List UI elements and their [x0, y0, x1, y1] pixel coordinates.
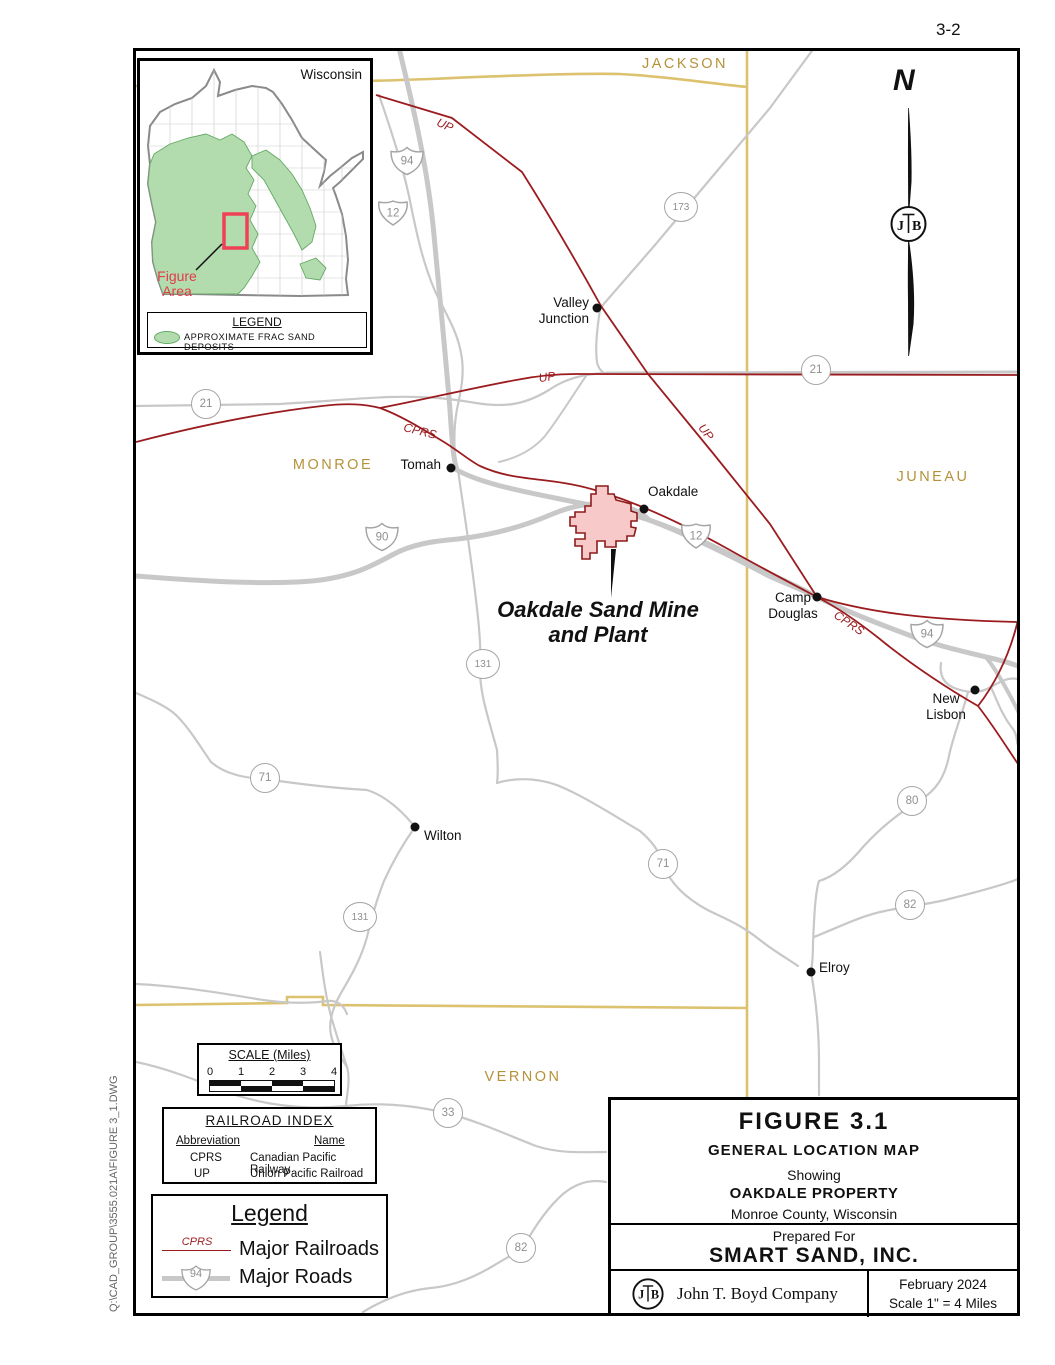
- city-label-line: Camp: [743, 590, 843, 606]
- county-label-juneau: JUNEAU: [896, 469, 969, 485]
- county-label-vernon: VERNON: [484, 1069, 561, 1085]
- route-number: 131: [343, 902, 377, 932]
- scale-ticks: 0 1 2 3 4: [199, 1066, 340, 1078]
- prepared-for: Prepared For: [611, 1228, 1017, 1244]
- legend-railroad-line-icon: [162, 1250, 231, 1251]
- inset-map: Wisconsin Figure Area LEGEND APPROXIMATE…: [137, 58, 373, 355]
- railroad-index-box: RAILROAD INDEX Abbreviation Name CPRS Ca…: [162, 1107, 377, 1184]
- company-name: John T. Boyd Company: [677, 1284, 838, 1304]
- railroad-label-cprs: CPRS: [402, 420, 438, 442]
- figure-date: February 2024: [899, 1275, 987, 1294]
- legend-cprs-tag: CPRS: [173, 1236, 221, 1248]
- route-number: 33: [433, 1098, 463, 1128]
- route-shield-71: 71: [250, 763, 280, 793]
- route-number: 21: [801, 355, 831, 385]
- north-label: N: [893, 64, 915, 98]
- route-shield-33: 33: [433, 1098, 463, 1128]
- city-label-line: Wilton: [424, 828, 524, 844]
- route-number: 82: [506, 1233, 536, 1263]
- property-name: OAKDALE PROPERTY: [611, 1185, 1017, 1202]
- route-shield-82: 82: [895, 890, 925, 920]
- route-shield-21: 21: [191, 389, 221, 419]
- scale-title: SCALE (Miles): [229, 1048, 311, 1062]
- jtb-logo-icon: J B: [631, 1277, 665, 1311]
- route-shield-21: 21: [801, 355, 831, 385]
- legend-road-shield-icon: 94: [181, 1265, 211, 1296]
- city-label-line: New: [896, 691, 996, 707]
- svg-text:J: J: [638, 1288, 644, 1302]
- city-label-camp-douglas: CampDouglas: [743, 590, 843, 622]
- figure-number: FIGURE 3.1: [611, 1108, 1017, 1136]
- route-shield-80: 80: [897, 786, 927, 816]
- railroad-label-up: UP: [435, 115, 456, 135]
- legend-title: Legend: [231, 1200, 308, 1226]
- svg-text:B: B: [651, 1288, 659, 1302]
- route-shield-173: 173: [664, 192, 698, 222]
- city-dot-tomah: [447, 464, 456, 473]
- legend-roads-label: Major Roads: [239, 1266, 352, 1289]
- city-label-elroy: Elroy: [819, 960, 919, 976]
- route-number: 80: [897, 786, 927, 816]
- city-label-tomah: Tomah: [341, 457, 441, 473]
- city-dot-oakdale: [640, 505, 649, 514]
- legend-box: Legend CPRS Major Railroads 94 Major Roa…: [151, 1194, 388, 1298]
- scale-bar-box: SCALE (Miles) 0 1 2 3 4: [197, 1043, 342, 1096]
- city-dot-elroy: [807, 968, 816, 977]
- railroad-label-up: UP: [695, 421, 716, 443]
- route-shield-94: 94: [910, 620, 944, 649]
- city-label-line: Douglas: [743, 606, 843, 622]
- route-number: 82: [895, 890, 925, 920]
- city-dot-valley-junction: [593, 304, 602, 313]
- city-label-line: Elroy: [819, 960, 919, 976]
- route-shield-12: 12: [681, 523, 712, 550]
- railroad-index-col2: Name: [314, 1135, 345, 1147]
- railroad-index-col1: Abbreviation: [176, 1135, 240, 1147]
- city-label-line: Valley: [489, 295, 589, 311]
- route-number: 12: [378, 200, 409, 227]
- railroad-name: Union Pacific Railroad: [250, 1168, 363, 1180]
- route-shield-131: 131: [343, 902, 377, 932]
- county-label-jackson: JACKSON: [642, 56, 728, 72]
- city-dot-wilton: [411, 823, 420, 832]
- route-number: 94: [390, 147, 424, 176]
- route-shield-90: 90: [365, 523, 399, 552]
- route-shield-71: 71: [648, 849, 678, 879]
- city-label-oakdale: Oakdale: [648, 484, 748, 500]
- city-label-new-lisbon: NewLisbon: [896, 691, 996, 723]
- city-label-line: Tomah: [341, 457, 441, 473]
- figure-scale: Scale 1" = 4 Miles: [889, 1294, 997, 1313]
- city-label-wilton: Wilton: [424, 828, 524, 844]
- scale-bar: [209, 1080, 335, 1092]
- route-number: 71: [250, 763, 280, 793]
- railroad-label-up: UP: [538, 369, 556, 385]
- county-state: Monroe County, Wisconsin: [611, 1206, 1017, 1222]
- route-number: 90: [365, 523, 399, 552]
- city-label-line: Lisbon: [896, 707, 996, 723]
- route-number: 131: [466, 649, 500, 679]
- route-number: 173: [664, 192, 698, 222]
- route-shield-82: 82: [506, 1233, 536, 1263]
- route-shield-94: 94: [390, 147, 424, 176]
- deposit-swatch-icon: [154, 331, 180, 344]
- title-block: FIGURE 3.1 GENERAL LOCATION MAP Showing …: [608, 1097, 1020, 1316]
- route-number: 94: [910, 620, 944, 649]
- inset-legend-title: LEGEND: [148, 315, 366, 329]
- railroad-label-cprs: CPRS: [831, 608, 866, 638]
- city-label-line: Oakdale: [648, 484, 748, 500]
- inset-legend: LEGEND APPROXIMATE FRAC SAND DEPOSITS: [147, 312, 367, 348]
- city-label-valley-junction: ValleyJunction: [489, 295, 589, 327]
- route-number: 71: [648, 849, 678, 879]
- railroad-abbr: CPRS: [190, 1152, 222, 1164]
- route-shield-12: 12: [378, 200, 409, 227]
- page-number: 3-2: [936, 20, 961, 40]
- railroad-abbr: UP: [194, 1168, 210, 1180]
- client-name: SMART SAND, INC.: [611, 1244, 1017, 1268]
- route-number: 21: [191, 389, 221, 419]
- showing-label: Showing: [611, 1167, 1017, 1183]
- figure-page: { "page": { "number": "3-2", "file_path"…: [0, 0, 1055, 1365]
- route-number: 12: [681, 523, 712, 550]
- figure-area-label: Figure Area: [146, 269, 208, 299]
- inset-legend-item: APPROXIMATE FRAC SAND DEPOSITS: [184, 332, 366, 352]
- city-label-line: Junction: [489, 311, 589, 327]
- route-shield-131: 131: [466, 649, 500, 679]
- railroad-index-title: RAILROAD INDEX: [205, 1113, 333, 1128]
- legend-railroads-label: Major Railroads: [239, 1238, 379, 1261]
- map-title: GENERAL LOCATION MAP: [611, 1142, 1017, 1159]
